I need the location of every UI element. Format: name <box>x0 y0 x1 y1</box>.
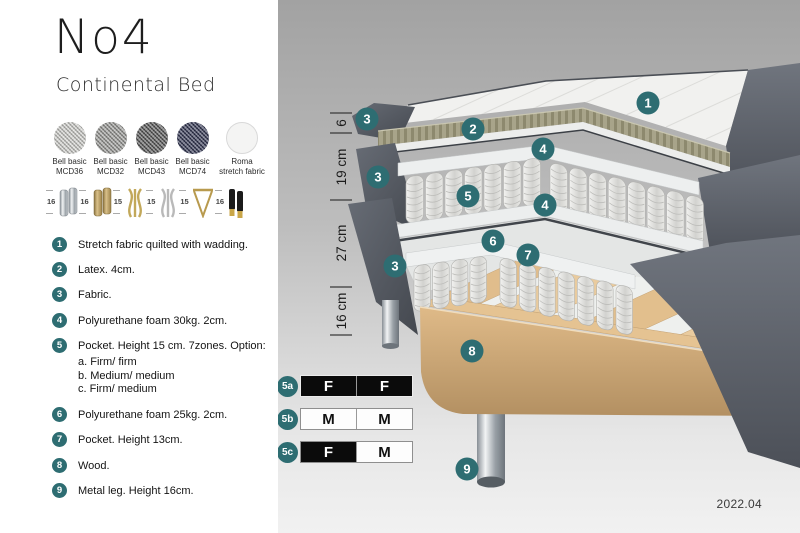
fabric-swatch: Bell basicMCD36 <box>49 122 90 176</box>
dimension-label: 27 cm <box>334 225 349 262</box>
fabric-swatch: Romastretch fabric <box>213 122 271 176</box>
list-item: 9 Metal leg. Height 16cm. <box>52 483 270 498</box>
list-item: 6 Polyurethane foam 25kg. 2cm. <box>52 407 270 422</box>
black-brass-leg-icon <box>226 187 246 218</box>
part-number-badge: 6 <box>52 407 67 422</box>
callout-badge: 4 <box>532 138 555 161</box>
list-item: 3 Fabric. <box>52 287 270 302</box>
part-number-badge: 9 <box>52 483 67 498</box>
fabric-swatch-circle <box>226 122 258 154</box>
firmness-row-badge: 5a <box>278 376 298 397</box>
brass-cylinder-leg-icon <box>91 187 113 218</box>
list-item: 4 Polyurethane foam 30kg. 2cm. <box>52 313 270 328</box>
svg-text:4: 4 <box>539 142 547 157</box>
part-number-badge: 2 <box>52 262 67 277</box>
callout-badge: 7 <box>517 244 540 267</box>
silver-curved-leg-icon <box>157 187 179 218</box>
leg-option: 15 <box>179 187 214 218</box>
fabric-swatch: Bell basicMCD43 <box>131 122 172 176</box>
list-item: 7 Pocket. Height 13cm. <box>52 432 270 447</box>
list-item: 2 Latex. 4cm. <box>52 262 270 277</box>
back-metal-leg <box>382 300 399 346</box>
list-item: 8 Wood. <box>52 458 270 473</box>
part-number-badge: 3 <box>52 287 67 302</box>
leg-option: 16 <box>79 187 112 218</box>
leg-option: 15 <box>113 187 146 218</box>
info-panel: No4 Continental Bed Bell basicMCD36 Bell… <box>0 0 278 533</box>
version-label: 2022.04 <box>717 497 762 511</box>
dimension-label: 16 cm <box>334 293 349 330</box>
list-item: 1 Stretch fabric quilted with wadding. <box>52 237 270 252</box>
front-metal-leg <box>477 408 505 482</box>
fabric-swatch: Bell basicMCD74 <box>172 122 213 176</box>
callout-badge: 9 <box>456 458 479 481</box>
callout-badge: 3 <box>384 255 407 278</box>
fabric-swatch: Bell basicMCD32 <box>90 122 131 176</box>
callout-badge: 3 <box>367 166 390 189</box>
svg-text:3: 3 <box>363 112 370 127</box>
fabric-swatch-circle <box>95 122 127 154</box>
firmness-bar: M M <box>300 408 413 430</box>
firmness-row: 5b M M <box>278 408 413 430</box>
part-number-badge: 8 <box>52 458 67 473</box>
fabric-swatch-circle <box>177 122 209 154</box>
gold-hairpin-leg-icon <box>191 187 215 218</box>
part-number-badge: 1 <box>52 237 67 252</box>
callout-badge: 6 <box>482 230 505 253</box>
dimension-labels: 6 19 cm 27 cm 16 cm <box>334 119 349 329</box>
callout-badge: 8 <box>461 340 484 363</box>
svg-text:3: 3 <box>391 259 398 274</box>
firmness-row-badge: 5c <box>278 442 298 463</box>
svg-text:2: 2 <box>469 122 476 137</box>
leg-option: 15 <box>146 187 179 218</box>
product-sheet: No4 Continental Bed Bell basicMCD36 Bell… <box>0 0 800 533</box>
leg-option: 16 <box>215 187 246 218</box>
fabric-swatch-circle <box>136 122 168 154</box>
illustration-panel: 6 19 cm 27 cm 16 cm 1 2 3 3 3 4 4 5 6 7 … <box>278 0 800 533</box>
callout-badge: 3 <box>356 108 379 131</box>
leg-option: 16 <box>46 187 79 218</box>
dimension-label: 19 cm <box>334 149 349 186</box>
product-title: No4 <box>54 10 154 65</box>
svg-text:4: 4 <box>541 198 549 213</box>
svg-text:6: 6 <box>489 234 496 249</box>
fabric-swatch-circle <box>54 122 86 154</box>
svg-text:8: 8 <box>468 344 475 359</box>
svg-text:3: 3 <box>374 170 381 185</box>
firmness-bar: F M <box>300 441 413 463</box>
list-item: 5 Pocket. Height 15 cm. 7zones. Option: … <box>52 338 270 397</box>
svg-text:5: 5 <box>464 189 471 204</box>
firmness-row: 5c F M <box>278 441 413 463</box>
fabric-swatch-row: Bell basicMCD36 Bell basicMCD32 Bell bas… <box>49 122 271 176</box>
callout-badge: 4 <box>534 194 557 217</box>
part-number-badge: 4 <box>52 313 67 328</box>
svg-text:7: 7 <box>524 248 531 263</box>
part-number-badge: 7 <box>52 432 67 447</box>
parts-list: 1 Stretch fabric quilted with wadding. 2… <box>52 237 270 508</box>
callout-badge: 5 <box>457 185 480 208</box>
callout-badge: 1 <box>637 92 660 115</box>
svg-text:1: 1 <box>644 96 651 111</box>
chrome-cylinder-leg-icon <box>57 187 79 218</box>
firmness-bar: F F <box>300 375 413 397</box>
leg-options-row: 16 16 15 <box>46 187 244 218</box>
firmness-row-badge: 5b <box>278 409 298 430</box>
dimension-label: 6 <box>334 119 349 127</box>
svg-text:9: 9 <box>463 462 470 477</box>
firmness-row: 5a F F <box>278 375 413 397</box>
callout-badge: 2 <box>462 118 485 141</box>
gold-curved-leg-icon <box>124 187 146 218</box>
part-number-badge: 5 <box>52 338 67 353</box>
product-subtitle: Continental Bed <box>56 74 216 96</box>
